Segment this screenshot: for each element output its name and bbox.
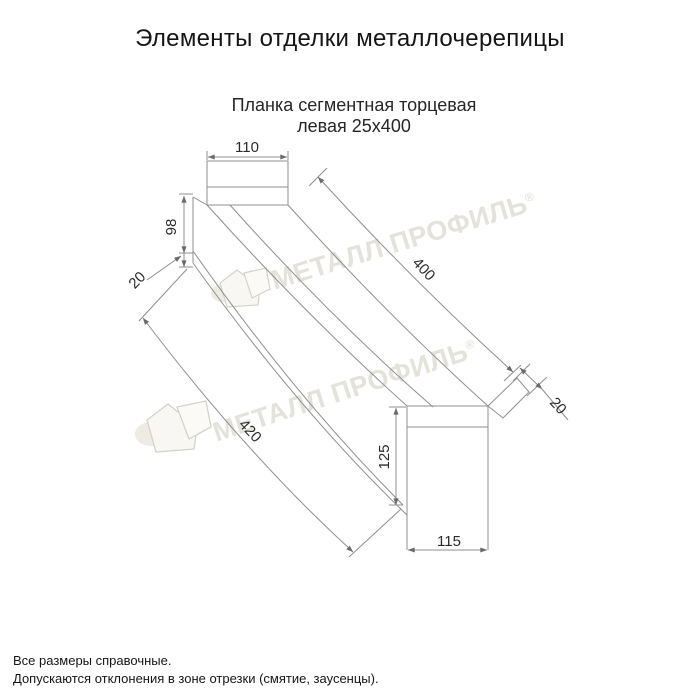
note-line1: Все размеры справочные. xyxy=(13,652,379,670)
note-line2: Допускаются отклонения в зоне отрезки (с… xyxy=(13,670,379,688)
dim-label-400: 400 xyxy=(409,254,439,284)
part-outline xyxy=(193,161,529,550)
dimension-lines xyxy=(139,151,568,557)
product-name: Планка сегментная торцевая левая 25x400 xyxy=(4,95,700,137)
far-end-web-edge xyxy=(193,197,207,263)
dim-line-400 xyxy=(318,177,513,372)
extension-line xyxy=(309,168,521,381)
watermark-logo-bottom xyxy=(135,401,211,452)
page-title: Элементы отделки металлочерепицы xyxy=(0,26,700,52)
product-name-line1: Планка сегментная торцевая xyxy=(4,95,700,116)
dim-label-20-left: 20 xyxy=(125,268,149,292)
dim-label-125: 125 xyxy=(376,444,393,469)
drawing-page: МЕТАЛЛ ПРОФИЛЬ® МЕТАЛЛ ПРОФИЛЬ® xyxy=(0,0,700,700)
far-end-flange-face xyxy=(207,161,288,205)
leader-line-20-left xyxy=(147,256,181,280)
footer-notes: Все размеры справочные. Допускаются откл… xyxy=(13,652,379,688)
long-top-edge xyxy=(288,205,488,406)
dim-label-420: 420 xyxy=(235,416,265,446)
dim-label-110: 110 xyxy=(235,139,259,156)
extension-line xyxy=(179,194,193,267)
watermark-logo-middle xyxy=(211,268,270,307)
long-fold-edge xyxy=(230,205,433,407)
dim-label-115: 115 xyxy=(437,533,461,550)
near-end-fold-flap xyxy=(488,378,529,418)
near-end-face xyxy=(407,406,488,550)
dim-label-98: 98 xyxy=(163,219,180,236)
product-name-line2: левая 25x400 xyxy=(4,116,700,137)
